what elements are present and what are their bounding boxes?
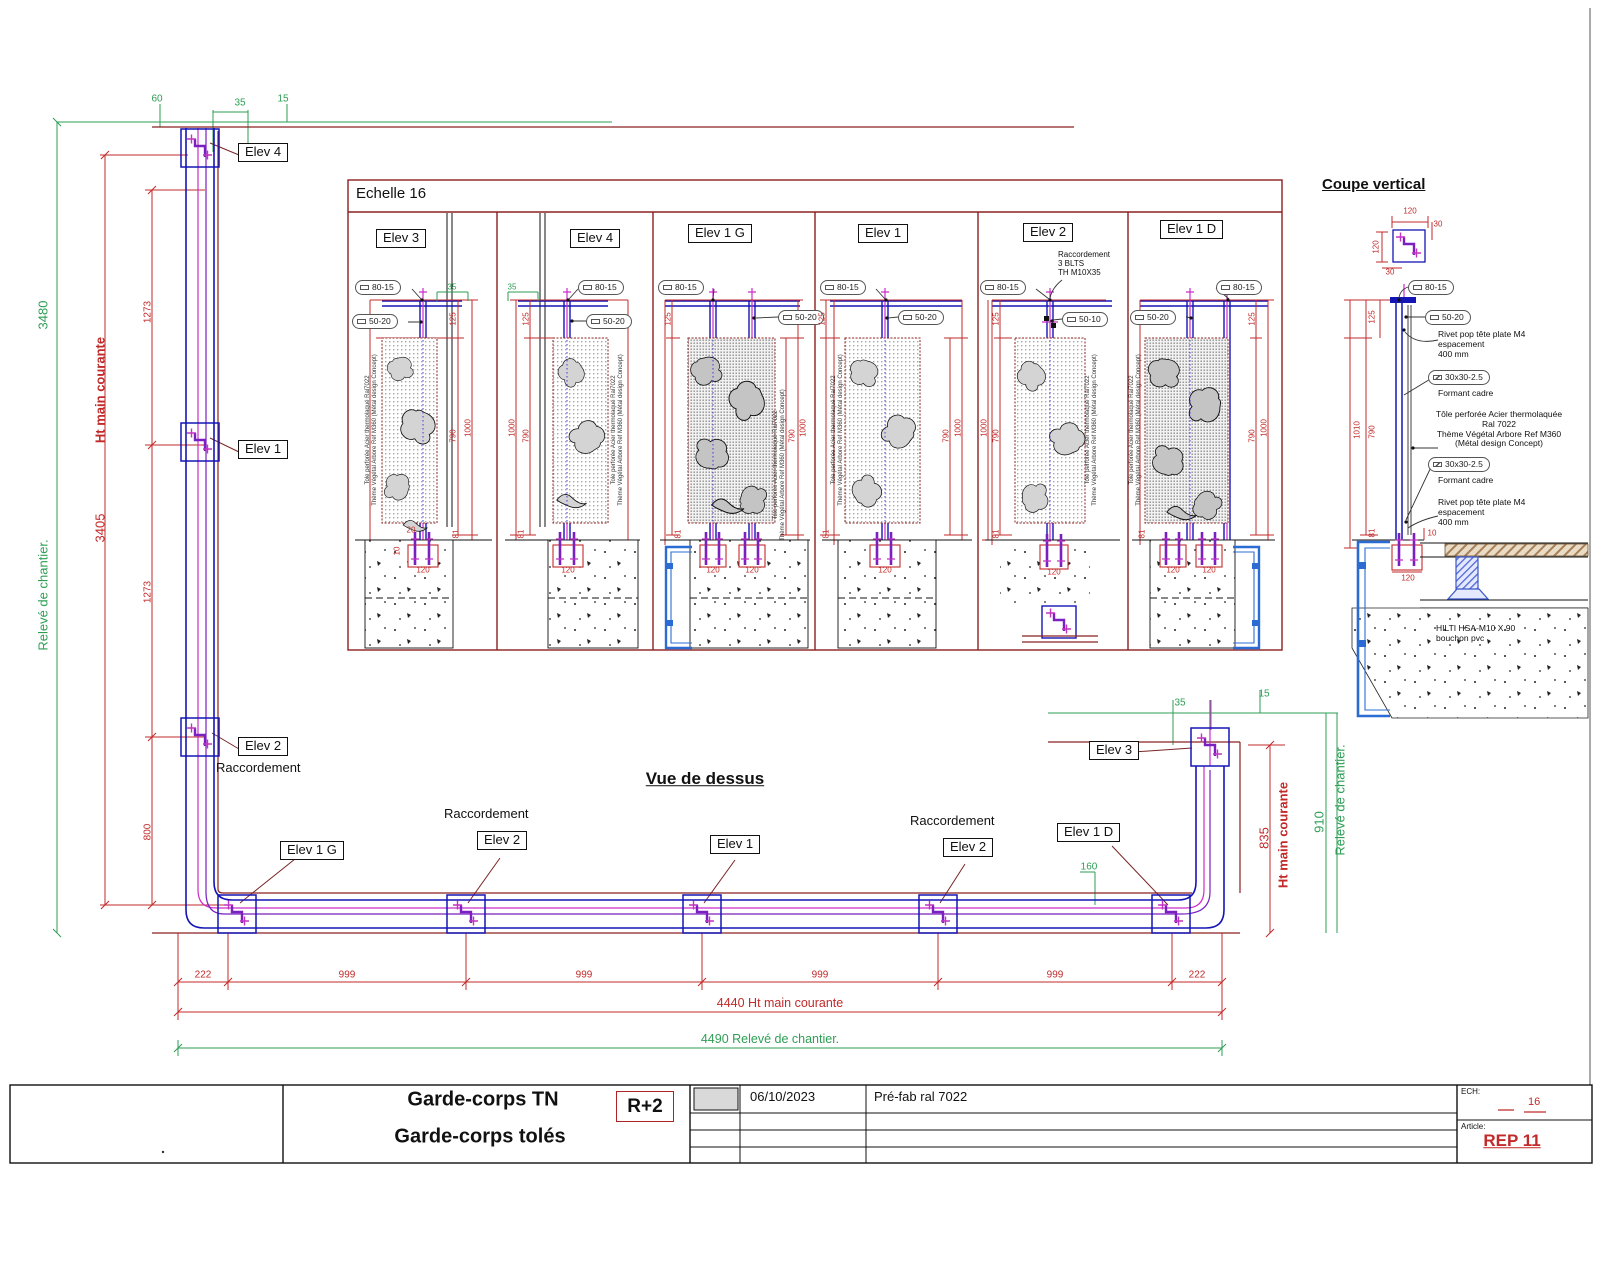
tag-text: 50-20 [915,313,937,323]
dim-120-c1: 120 [416,565,429,574]
description-field: Pré-fab ral 7022 [874,1090,967,1105]
profile-icon [825,285,834,290]
profile-icon [1135,315,1144,320]
plan-view-slab-edges [152,127,1240,933]
ech-scale-mark [1498,1110,1546,1112]
rivet-note-bottom: Rivet pop tête plate M4 espacement 400 m… [1438,498,1525,527]
dim-81-c4: 81 [821,530,830,539]
tag-30x30-top: 30x30-2.5 [1428,370,1490,385]
tag-80-15-c3: 80-15 [658,280,704,295]
tag-text: 50-20 [1147,313,1169,323]
dim-125-c3: 125 [663,312,672,325]
ech-value: 16 [1528,1096,1540,1109]
panel-note-c6: Tole perforée Acier thermolaqué Ral7022 … [1129,354,1143,505]
dim-1000-c5: 1000 [979,419,988,437]
tag-text: 50-20 [1442,313,1464,323]
tag-text: 80-15 [372,283,394,293]
dim-1000-c3: 1000 [798,419,807,437]
dim-35-c2: 35 [508,282,517,291]
profile-icon [357,319,366,324]
date-field: 06/10/2023 [750,1090,815,1105]
label-elev2-b2: Elev 2 [943,838,993,857]
label-raccordement-b2: Raccordement [910,814,995,829]
tole-note: Tôle perforée Acier thermolaquée Ral 702… [1424,410,1574,449]
coupe-vertical-title: Coupe vertical [1322,176,1425,193]
dim-15: 15 [277,93,288,105]
angle-profile-icon [1433,462,1442,467]
label-elev3-plan: Elev 3 [1089,741,1139,760]
dim-3480: 3480 [37,301,52,330]
label-elev2-b1: Elev 2 [477,831,527,850]
label-raccordement-left: Raccordement [216,761,301,776]
elevation-elev1d [1132,288,1275,648]
tag-text: 80-15 [595,283,617,293]
label-elev1d-col: Elev 1 D [1160,220,1223,239]
label-releve-chantier-right: Relevé de chantier. [1334,744,1349,855]
coupe-dim-30-bottom: 30 [1386,267,1395,276]
tag-80-15-c2: 80-15 [578,280,624,295]
dim-790-c1: 790 [448,429,457,442]
tag-text: 50-10 [1079,315,1101,325]
dim-790-c4: 790 [941,429,950,442]
dim-4440-total: 4440 Ht main courante [717,996,843,1010]
profile-icon [1430,315,1439,320]
tag-50-20-c4: 50-20 [898,310,944,325]
plan-view-leader-lines [210,143,1192,905]
tag-50-20-c2: 50-20 [586,314,632,329]
dim-120-c3a: 120 [706,565,719,574]
panel-note-c1: Tole perforée Acier thermolaqué Ral7022 … [365,354,379,505]
formant-cadre-bottom: Formant cadre [1438,476,1493,486]
dim-81-c5: 81 [991,530,1000,539]
tag-text: 50-20 [369,317,391,327]
dim-3405: 3405 [94,514,109,543]
label-elev1: Elev 1 [238,440,288,459]
dim-35: 35 [234,97,245,109]
profile-icon [1067,317,1076,322]
tag-80-15-coupe: 80-15 [1408,280,1454,295]
tag-50-10-c5: 50-10 [1062,312,1108,327]
dim-125-c6: 125 [1247,312,1256,325]
tag-50-20-c1: 50-20 [352,314,398,329]
dim-1000-c2: 1000 [507,419,516,437]
dim-81-c2: 81 [516,530,525,539]
panel-note-c3: Tole perforée Acier thermolaqué Ral7022 … [773,389,787,540]
tag-text: 50-20 [795,313,817,323]
label-elev2-col: Elev 2 [1023,223,1073,242]
dim-120-c4: 120 [878,565,891,574]
coupe-dim-790: 790 [1367,425,1376,438]
coupe-dim-125: 125 [1367,310,1376,323]
dim-125-c2: 125 [521,312,530,325]
label-ht-main-courante-left: Ht main courante [94,337,109,443]
profile-icon [903,315,912,320]
tag-text: 80-15 [1425,283,1447,293]
profile-icon [985,285,994,290]
tag-80-15-c1: 80-15 [355,280,401,295]
dim-790-c6: 790 [1247,429,1256,442]
dim-4490-total: 4490 Relevé de chantier. [701,1032,839,1046]
coupe-dim-120-top: 120 [1403,206,1416,215]
label-elev1-col: Elev 1 [858,224,908,243]
dim-81-c6: 81 [1137,530,1146,539]
tag-text: 80-15 [837,283,859,293]
label-elev4: Elev 4 [238,143,288,162]
tag-50-20-c6: 50-20 [1130,310,1176,325]
tag-text: 80-15 [997,283,1019,293]
dim-790-c2: 790 [521,429,530,442]
tag-text: 30x30-2.5 [1445,373,1483,383]
dim-81-c3: 81 [673,530,682,539]
ech-label: ECH: [1461,1087,1480,1096]
label-elev1-plan: Elev 1 [710,835,760,854]
dim-999-1: 999 [339,969,356,981]
dim-35-c1: 35 [448,282,457,291]
dim-999-4: 999 [1047,969,1064,981]
dim-120-c2: 120 [561,565,574,574]
vue-de-dessus-title: Vue de dessus [646,769,764,789]
dim-15-right: 15 [1258,688,1269,700]
profile-icon [583,285,592,290]
coupe-dim-30-right: 30 [1434,219,1443,228]
hilti-anchor-note: HILTI HSA-M10 X 90 bouchon pvc [1436,624,1515,644]
dim-60: 60 [151,93,162,105]
echelle-title: Echelle 16 [356,185,426,202]
profile-icon [1221,285,1230,290]
dim-790-c3: 790 [787,429,796,442]
dim-125-c5: 125 [991,312,1000,325]
label-elev4-col: Elev 4 [570,229,620,248]
panel-note-c4: Tole perforée Acier thermolaqué Ral7022 … [831,354,845,505]
plan-view-handrail [186,128,1224,928]
label-raccordement-b1: Raccordement [444,807,529,822]
label-ht-main-courante-right: Ht main courante [1277,782,1292,888]
sheet-title-1: Garde-corps TN [407,1089,558,1112]
dim-999-3: 999 [812,969,829,981]
tag-50-20-coupe: 50-20 [1425,310,1471,325]
dim-120-c6b: 120 [1202,565,1215,574]
coupe-dim-120-left: 120 [1371,240,1380,253]
dim-120-c6a: 120 [1166,565,1179,574]
dim-35-right: 35 [1174,697,1185,709]
dim-125-c1: 125 [448,312,457,325]
label-elev3-col: Elev 3 [376,229,426,248]
dim-222-r: 222 [1189,969,1206,981]
dim-835: 835 [1258,827,1273,849]
coupe-dim-1010: 1010 [1352,421,1361,439]
elevation-elev2 [982,280,1120,642]
dim-790-c5: 790 [991,429,1000,442]
profile-icon [783,315,792,320]
dim-160: 160 [1081,861,1098,873]
dim-10-c1: 10 [392,547,401,556]
rivet-note-top: Rivet pop tête plate M4 espacement 400 m… [1438,330,1525,359]
dim-1273-a: 1273 [142,301,154,323]
tag-80-15-c6: 80-15 [1216,280,1262,295]
angle-profile-icon [1433,375,1442,380]
raccordement-note-elev2: Raccordement 3 BLTS TH M10X35 [1058,250,1110,278]
profile-icon [360,285,369,290]
label-elev1g-col: Elev 1 G [688,224,752,243]
article-value: REP 11 [1483,1131,1540,1151]
tag-30x30-bottom: 30x30-2.5 [1428,457,1490,472]
formant-cadre-top: Formant cadre [1438,389,1493,399]
profile-icon [663,285,672,290]
panel-note-c2: Tole perforée Acier thermolaqué Ral7022 … [611,354,625,505]
dim-81-c1: 81 [451,530,460,539]
coupe-dim-10: 10 [1428,528,1437,537]
tag-text: 50-20 [603,317,625,327]
dim-1000-c6: 1000 [1259,419,1268,437]
tag-text: 30x30-2.5 [1445,460,1483,470]
dim-800: 800 [142,824,154,841]
profile-icon [591,319,600,324]
technical-drawing-sheet: { "titles": {"echelle": "Echelle 16", "c… [0,0,1600,1280]
tag-80-15-c5: 80-15 [980,280,1026,295]
dim-1000-c1: 1000 [463,419,472,437]
dim-910: 910 [1313,811,1328,833]
coupe-dim-120-base: 120 [1401,573,1414,582]
dim-20-c1: 20 [407,525,416,534]
panel-note-c5: Tole perforée Acier thermolaqué Ral7022 … [1085,354,1099,505]
dim-222-l: 222 [195,969,212,981]
label-elev2: Elev 2 [238,737,288,756]
article-label: Article: [1461,1122,1485,1131]
tag-80-15-c4: 80-15 [820,280,866,295]
dim-120-c5: 120 [1047,567,1060,576]
label-elev1d-plan: Elev 1 D [1057,823,1120,842]
label-releve-chantier-left: Relevé de chantier. [37,539,52,650]
dim-120-c3b: 120 [745,565,758,574]
dim-1273-b: 1273 [142,581,154,603]
dim-125-c4: 125 [817,312,826,325]
profile-icon [1413,285,1422,290]
elevation-elev1g [660,288,810,648]
dim-1000-c4: 1000 [953,419,962,437]
label-elev1g-plan: Elev 1 G [280,841,344,860]
sheet-title-2: Garde-corps tolés [394,1126,565,1149]
tag-text: 80-15 [675,283,697,293]
tag-text: 80-15 [1233,283,1255,293]
dim-999-2: 999 [576,969,593,981]
level-badge: R+2 [616,1091,674,1122]
coupe-dim-81: 81 [1367,529,1376,538]
